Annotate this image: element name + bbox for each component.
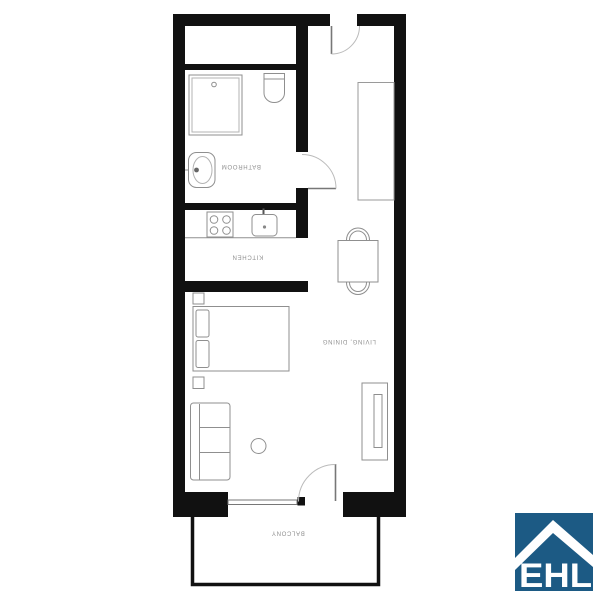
hallway xyxy=(358,83,394,201)
room-label-bathroom: BATHROOM xyxy=(221,163,261,169)
bathroom-sink-icon xyxy=(189,153,216,188)
wall-corridor-lower xyxy=(296,188,308,238)
sleeping-area xyxy=(193,293,289,389)
balcony-outline xyxy=(193,517,379,585)
chair-back-line xyxy=(350,283,367,292)
bathroom: BATHROOM xyxy=(185,74,285,188)
nightstand-icon xyxy=(193,293,204,304)
balcony-door-swing-icon xyxy=(299,465,336,502)
bathroom-door-swing-icon xyxy=(302,155,336,189)
wall-kitchen-top xyxy=(185,203,296,210)
chair-back-line xyxy=(350,231,367,240)
coffee-table-icon xyxy=(251,439,266,454)
wall-bottom-pier-left xyxy=(173,492,228,517)
toilet-bowl xyxy=(264,79,285,103)
pillow-icon xyxy=(196,310,209,337)
wall-bedroom xyxy=(173,281,308,292)
ehl-logo: EHL xyxy=(515,513,593,591)
wall-left xyxy=(173,14,185,517)
room-label-balcony: BALCONY xyxy=(271,530,305,536)
dining-area xyxy=(338,228,378,295)
kitchen-sink-drain xyxy=(263,225,266,228)
kitchen: KITCHEN xyxy=(185,209,296,260)
sofa-icon xyxy=(191,403,231,480)
wardrobe-icon xyxy=(358,83,394,201)
dining-table-icon xyxy=(338,241,378,283)
room-label-living-dining: LIVING, DINING xyxy=(322,338,376,344)
balcony-window-icon xyxy=(228,500,297,505)
toilet-icon xyxy=(264,74,285,80)
room-label-kitchen: KITCHEN xyxy=(232,254,263,260)
pillow-icon xyxy=(196,341,209,368)
wall-top-left xyxy=(173,14,330,26)
wall-bottom-pier-right xyxy=(343,492,406,517)
sink-faucet xyxy=(194,168,199,173)
nightstand-icon xyxy=(193,377,204,389)
shower-icon xyxy=(189,75,242,135)
balcony: BALCONY xyxy=(193,517,379,585)
wall-corridor-upper xyxy=(296,26,308,152)
entrance-door-swing-icon xyxy=(332,26,360,54)
logo-text: EHL xyxy=(519,557,592,591)
kitchen-sink-icon xyxy=(252,215,277,237)
floor-plan: BATHROOM KITCHEN xyxy=(0,0,600,600)
wall-right xyxy=(394,14,406,517)
wall-niche xyxy=(185,64,297,70)
